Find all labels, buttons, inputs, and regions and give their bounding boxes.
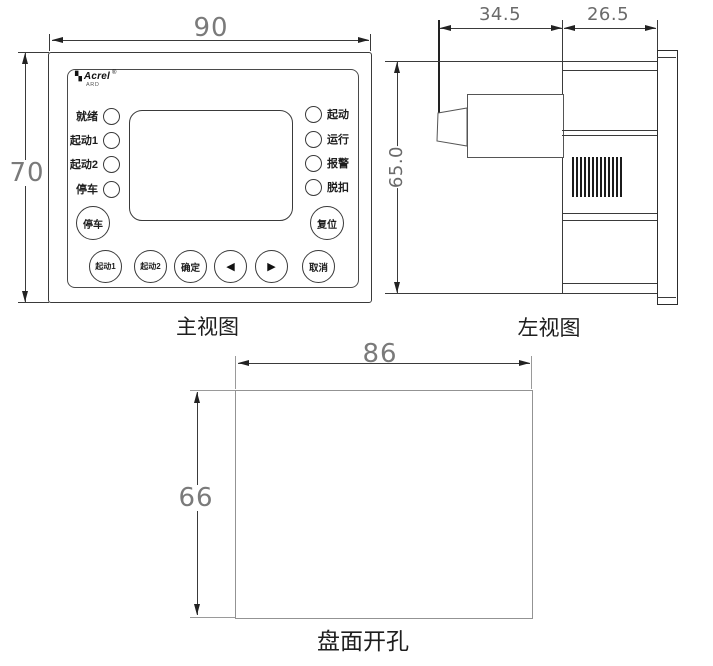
terminal-block: [467, 94, 564, 158]
start2-button-label: 起动2: [140, 261, 160, 272]
led-label: 报警: [327, 155, 349, 171]
dim-ext-line: [190, 390, 235, 391]
dim-arrow-right-icon: [358, 37, 369, 43]
led-label: 运行: [327, 131, 349, 147]
led-row-start1: 起动1: [68, 131, 120, 149]
led-indicator-icon: [305, 179, 322, 196]
right-arrow-button: ▶: [255, 250, 288, 283]
dim-arrow-right-icon: [551, 25, 562, 31]
dim-value-cutout-height: 66: [176, 485, 216, 511]
led-row-start2: 起动2: [68, 155, 120, 173]
side-body-top-line: [385, 61, 657, 62]
dim-ext-line: [531, 356, 532, 389]
lcd-screen: [129, 110, 293, 221]
led-label: 脱扣: [327, 179, 349, 195]
dim-line-front-depth: [564, 28, 656, 29]
confirm-button-label: 确定: [181, 260, 200, 274]
dim-ext-line: [562, 20, 563, 61]
dim-ext-line: [49, 34, 50, 51]
dim-ext-line: [18, 302, 49, 303]
right-arrow-icon: ▶: [267, 260, 275, 273]
acrel-logo: ▚ Acrel ® ARD: [75, 72, 116, 89]
stop-button-label: 停车: [83, 216, 103, 231]
dim-arrow-up-icon: [194, 392, 200, 403]
led-label: 停车: [76, 181, 98, 197]
dim-value-side-height: 65.0: [388, 146, 406, 188]
reset-button-label: 复位: [317, 216, 337, 231]
left-arrow-icon: ◀: [226, 260, 234, 273]
led-label: 起动: [327, 106, 349, 122]
dim-value-front-depth: 26.5: [578, 6, 638, 24]
dim-arrow-down-icon: [394, 282, 400, 293]
side-view-caption: 左视图: [495, 312, 603, 342]
dim-arrow-left-icon: [52, 37, 63, 43]
dim-line-rear-depth: [440, 28, 562, 29]
side-body-bottom-line: [385, 293, 657, 294]
dim-value-cutout-width: 86: [350, 341, 410, 367]
dim-value-height: 70: [8, 160, 46, 186]
confirm-button: 确定: [174, 250, 207, 283]
side-section-line: [562, 220, 657, 221]
led-indicator-icon: [305, 131, 322, 148]
led-label: 起动2: [70, 156, 98, 172]
dim-arrow-left-icon: [564, 25, 575, 31]
start2-button: 起动2: [134, 250, 167, 283]
cancel-button: 取消: [302, 250, 335, 283]
led-label: 就绪: [76, 108, 98, 124]
dim-arrow-up-icon: [394, 62, 400, 73]
led-row-start: 起动: [305, 105, 365, 123]
dim-arrow-right-icon: [519, 360, 530, 366]
dim-arrow-right-icon: [645, 25, 656, 31]
flange-notch-line: [657, 297, 676, 298]
side-section-line: [562, 70, 657, 71]
dim-arrow-up-icon: [22, 53, 28, 64]
side-section-line: [562, 213, 657, 214]
led-row-run: 运行: [305, 130, 365, 148]
led-indicator-icon: [305, 106, 322, 123]
led-indicator-icon: [103, 108, 120, 125]
led-label: 起动1: [70, 132, 98, 148]
dim-ext-line: [370, 34, 371, 51]
dim-ext-line: [657, 20, 658, 50]
side-section-line: [562, 283, 657, 284]
dim-value-rear-depth: 34.5: [470, 6, 530, 24]
dim-arrow-down-icon: [194, 604, 200, 615]
bezel-flange: [657, 50, 678, 305]
side-section-line: [562, 135, 657, 136]
dim-arrow-left-icon: [440, 25, 451, 31]
cancel-button-label: 取消: [309, 260, 328, 274]
dim-ext-line: [235, 356, 236, 389]
start1-button-label: 起动1: [95, 261, 115, 272]
led-indicator-icon: [103, 156, 120, 173]
registered-mark: ®: [112, 70, 116, 76]
cutout-rect: [235, 390, 533, 619]
cutout-view-caption: 盘面开孔: [303, 622, 423, 656]
reset-button: 复位: [310, 206, 344, 240]
flange-notch-line: [657, 57, 676, 58]
acrel-logo-icon: ▚: [75, 72, 82, 81]
led-indicator-icon: [103, 132, 120, 149]
led-row-trip: 脱扣: [305, 178, 365, 196]
dim-value-width: 90: [189, 15, 233, 41]
led-row-ready: 就绪: [68, 107, 120, 125]
dim-ext-line: [190, 617, 235, 618]
led-indicator-icon: [305, 155, 322, 172]
vent-grille: [572, 157, 622, 197]
stop-button: 停车: [76, 206, 110, 240]
side-section-line: [562, 130, 657, 131]
dim-arrow-left-icon: [238, 360, 249, 366]
start1-button: 起动1: [89, 250, 122, 283]
dim-ext-line: [438, 20, 440, 113]
dim-arrow-down-icon: [22, 291, 28, 302]
front-view-caption: 主视图: [155, 311, 260, 341]
technical-drawing: 90 70 ▚ Acrel ® ARD 就绪 起动1: [0, 0, 713, 666]
ard-label: ARD: [86, 83, 116, 89]
acrel-logo-text: Acrel: [84, 72, 110, 82]
left-arrow-button: ◀: [214, 250, 247, 283]
led-row-stop: 停车: [68, 180, 120, 198]
led-row-alarm: 报警: [305, 154, 365, 172]
led-indicator-icon: [103, 181, 120, 198]
